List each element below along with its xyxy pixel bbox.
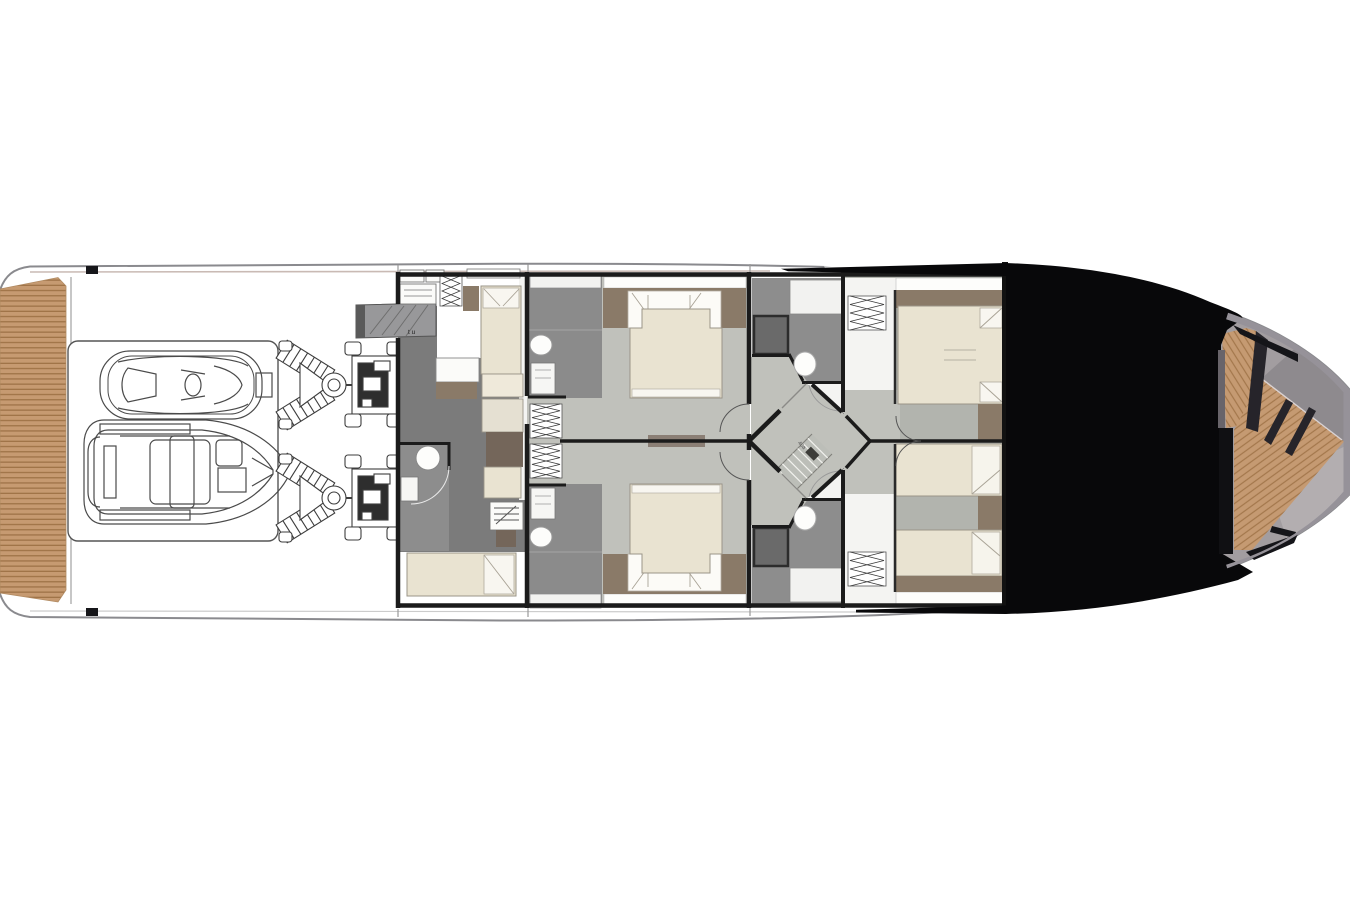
svg-text:t u: t u <box>408 329 416 336</box>
